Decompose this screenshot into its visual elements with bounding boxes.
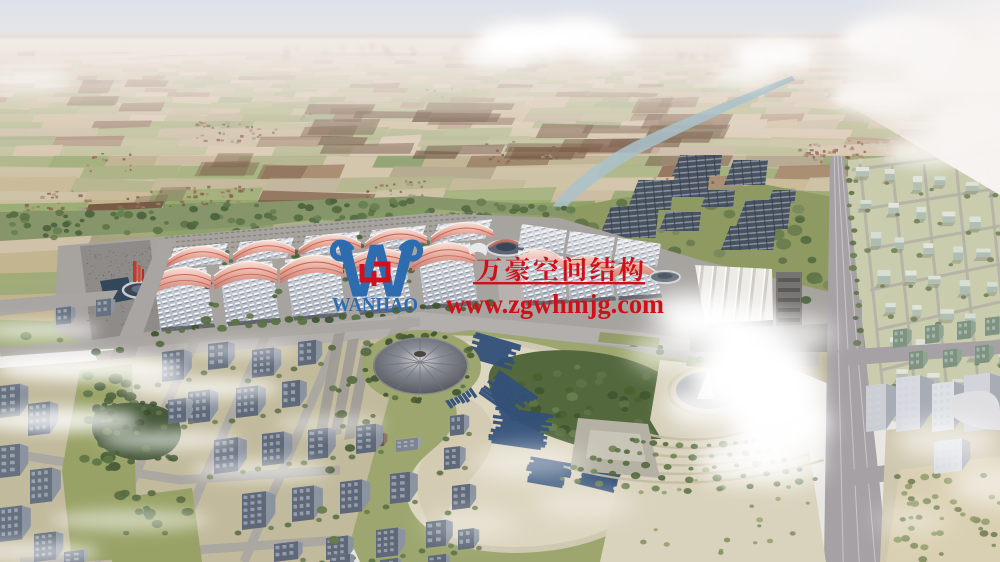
svg-text:WANHAO: WANHAO — [332, 294, 418, 316]
svg-text:www.zgwhmjg.com: www.zgwhmjg.com — [446, 289, 664, 319]
